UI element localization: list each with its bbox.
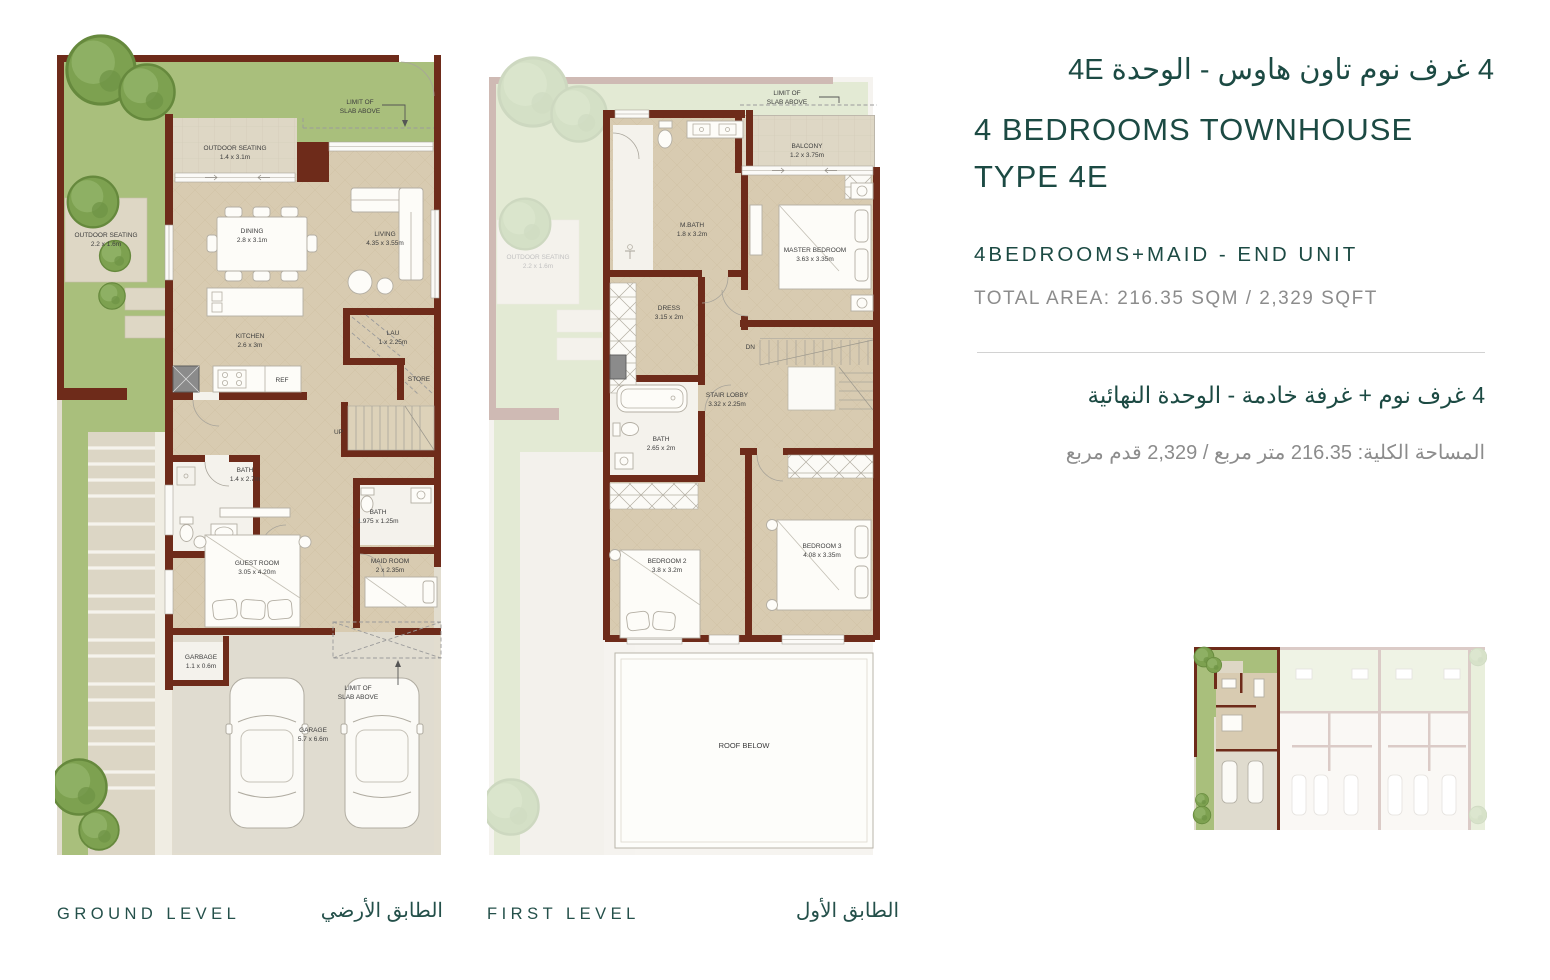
floor-plan-brochure-page: LIMIT OF SLAB ABOVE OUTDOOR SEATING 1.4 …	[0, 0, 1550, 980]
caption-first-level-arabic: الطابق الأول	[700, 898, 899, 923]
svg-text:1.1 x 0.6m: 1.1 x 0.6m	[186, 663, 216, 670]
shaft	[610, 355, 626, 379]
garden-step	[125, 288, 170, 310]
room-label-dress: DRESS	[658, 305, 681, 312]
svg-text:1 x 2.25m: 1 x 2.25m	[379, 339, 408, 346]
svg-text:1.8 x 3.2m: 1.8 x 3.2m	[677, 231, 707, 238]
garden-step	[125, 316, 170, 338]
total-area-arabic: المساحة الكلية: 216.35 متر مربع / 2,329 …	[970, 440, 1485, 465]
svg-text:4.08 x 3.35m: 4.08 x 3.35m	[803, 552, 841, 559]
svg-text:SLAB ABOVE: SLAB ABOVE	[340, 108, 381, 115]
room-label-dining: DINING	[241, 228, 264, 235]
svg-text:2.2 x 1.6m: 2.2 x 1.6m	[91, 241, 121, 248]
first-limit-slab-label: LIMIT OF	[773, 90, 800, 97]
total-area: TOTAL AREA: 216.35 SQM / 2,329 SQFT	[974, 288, 1378, 310]
svg-text:3.05 x 4.20m: 3.05 x 4.20m	[238, 569, 276, 576]
page-title: 4 BEDROOMS TOWNHOUSE	[974, 112, 1413, 148]
svg-text:2.8 x 3.1m: 2.8 x 3.1m	[237, 237, 267, 244]
up-label: UP	[334, 429, 343, 436]
page-title-arabic: 4 غرف نوم تاون هاوس - الوحدة 4E	[970, 52, 1494, 87]
first-level-plan: OUTDOOR SEATING 1.4 x 3.1m OUTDOOR SEATI…	[487, 55, 887, 855]
caption-first-level: FIRST LEVEL	[487, 905, 640, 924]
svg-text:2.6 x 3m: 2.6 x 3m	[238, 342, 263, 349]
site-units-faded	[1280, 647, 1487, 830]
svg-text:3.32 x 2.25m: 3.32 x 2.25m	[708, 401, 746, 408]
svg-text:SLAB ABOVE: SLAB ABOVE	[338, 694, 379, 701]
room-label-bedroom2: BEDROOM 2	[647, 558, 686, 565]
svg-text:3.63 x 3.35m: 3.63 x 3.35m	[796, 256, 834, 263]
room-label-stair-lobby: STAIR LOBBY	[706, 392, 749, 399]
room-label-outdoor-left: OUTDOOR SEATING	[74, 232, 137, 239]
header-divider	[977, 352, 1485, 353]
svg-text:3.15 x 2m: 3.15 x 2m	[655, 314, 684, 321]
svg-text:5.7 x 6.6m: 5.7 x 6.6m	[298, 736, 328, 743]
stairs-up	[348, 406, 434, 450]
dn-label: DN	[746, 344, 756, 351]
svg-text:2.2 x 1.6m: 2.2 x 1.6m	[523, 263, 553, 270]
garbage-floor	[173, 642, 228, 682]
svg-text:1.4 x 2.7m: 1.4 x 2.7m	[230, 476, 260, 483]
room-label-kitchen: KITCHEN	[236, 333, 265, 340]
unit-description: 4BEDROOMS+MAID - END UNIT	[974, 243, 1358, 267]
limit-slab-garage-label: LIMIT OF	[344, 685, 371, 692]
mbath-floor	[613, 125, 653, 270]
svg-text:3.8 x 3.2m: 3.8 x 3.2m	[652, 567, 682, 574]
room-label-garage: GARAGE	[299, 727, 327, 734]
ground-level-plan: LIMIT OF SLAB ABOVE OUTDOOR SEATING 1.4 …	[55, 30, 455, 855]
maid-bed	[365, 577, 437, 607]
store-label: STORE	[408, 376, 431, 383]
room-label-outdoor-top: OUTDOOR SEATING	[203, 145, 266, 152]
svg-text:1.4 x 3.1m: 1.4 x 3.1m	[220, 154, 250, 161]
caption-ground-level-arabic: الطابق الأرضي	[243, 898, 443, 923]
roof-below	[615, 653, 873, 848]
site-plan-thumbnail	[1192, 645, 1487, 835]
faded-outdoor-left-label: OUTDOOR SEATING	[506, 254, 569, 261]
caption-ground-level: GROUND LEVEL	[57, 905, 240, 924]
bedroom3-bed	[767, 520, 872, 611]
page-title-type: TYPE 4E	[974, 159, 1109, 195]
room-label-bath1: BATH	[237, 467, 254, 474]
svg-text:2.65 x 2m: 2.65 x 2m	[647, 445, 676, 452]
room-label-garbage: GARBAGE	[185, 654, 218, 661]
room-label-guest: GUEST ROOM	[235, 560, 279, 567]
ref-label: REF	[276, 377, 289, 384]
svg-text:2 x 2.35m: 2 x 2.35m	[376, 567, 405, 574]
site-unit-highlighted	[1193, 647, 1280, 830]
unit-description-arabic: 4 غرف نوم + غرفة خادمة - الوحدة النهائية	[970, 382, 1485, 409]
roof-below-label: ROOF BELOW	[719, 741, 771, 750]
room-label-bedroom3: BEDROOM 3	[802, 543, 841, 550]
stair-landing	[788, 367, 835, 410]
svg-text:1.2 x 3.75m: 1.2 x 3.75m	[790, 152, 824, 159]
room-label-bath2: BATH	[370, 509, 387, 516]
svg-text:1.975 x 1.25m: 1.975 x 1.25m	[357, 518, 398, 525]
svg-text:4.35 x 3.55m: 4.35 x 3.55m	[366, 240, 404, 247]
limit-slab-label: LIMIT OF	[346, 99, 373, 106]
room-label-mbath: M.BATH	[680, 222, 704, 229]
room-label-first-bath: BATH	[653, 436, 670, 443]
room-label-master: MASTER BEDROOM	[784, 247, 846, 254]
dining-table	[207, 207, 317, 281]
room-label-living: LIVING	[374, 231, 395, 238]
svg-text:SLAB ABOVE: SLAB ABOVE	[767, 99, 808, 106]
room-label-balcony: BALCONY	[791, 143, 823, 150]
room-label-lau: LAU	[387, 330, 400, 337]
room-label-maid: MAID ROOM	[371, 558, 409, 565]
